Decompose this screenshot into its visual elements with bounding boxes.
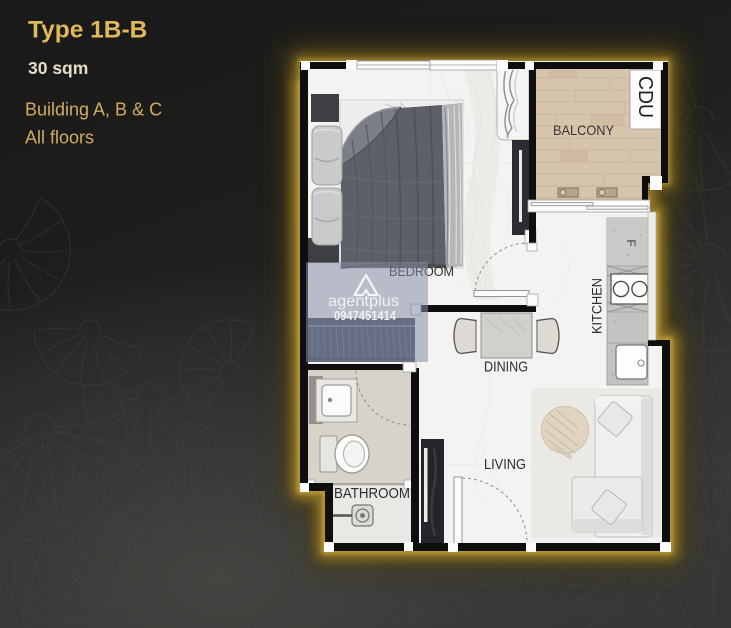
svg-text:Type 1B-B: Type 1B-B (28, 17, 147, 44)
svg-text:KITCHEN: KITCHEN (589, 278, 605, 334)
svg-text:F: F (624, 239, 638, 246)
svg-text:DINING: DINING (484, 359, 528, 376)
svg-text:LIVING: LIVING (484, 456, 526, 473)
svg-text:BATHROOM: BATHROOM (334, 485, 410, 502)
svg-text:30 sqm: 30 sqm (28, 58, 88, 78)
svg-text:BALCONY: BALCONY (553, 122, 615, 138)
svg-text:CDU: CDU (634, 76, 656, 118)
svg-text:All floors: All floors (25, 128, 94, 148)
svg-text:Building A, B & C: Building A, B & C (25, 100, 162, 120)
svg-text:0947451414: 0947451414 (334, 308, 397, 323)
